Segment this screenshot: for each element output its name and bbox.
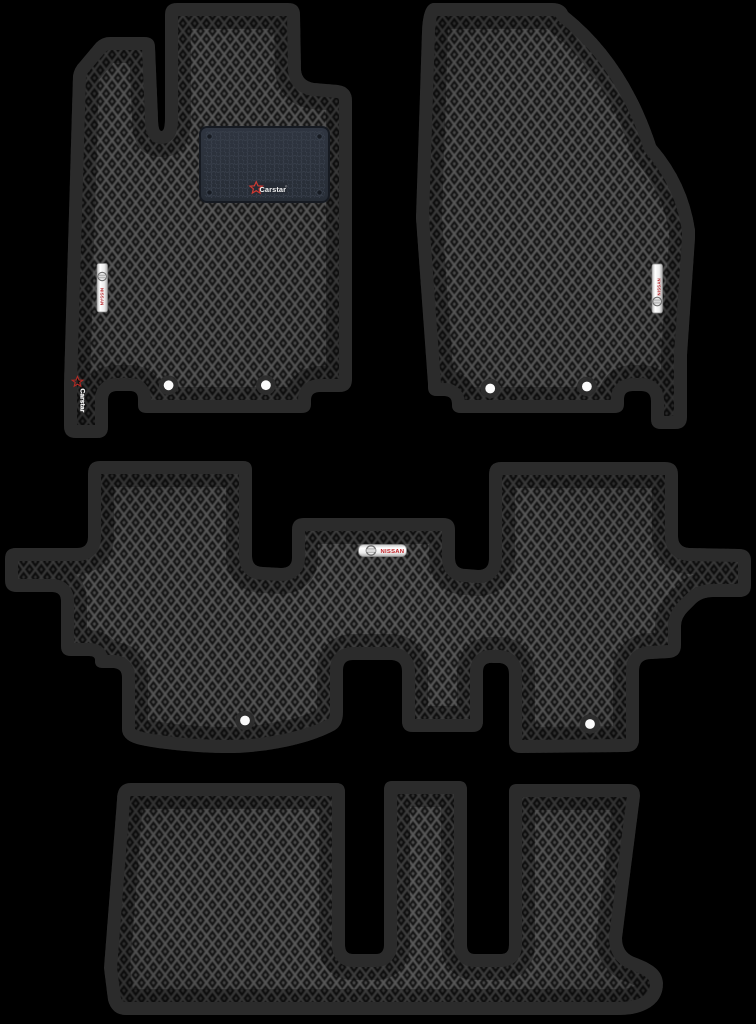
svg-text:Carstar: Carstar	[78, 389, 85, 413]
svg-text:NISSAN: NISSAN	[656, 278, 661, 295]
svg-text:NISSAN: NISSAN	[100, 288, 105, 305]
svg-text:Carstar: Carstar	[260, 185, 287, 194]
svg-text:NISSAN: NISSAN	[381, 549, 405, 555]
